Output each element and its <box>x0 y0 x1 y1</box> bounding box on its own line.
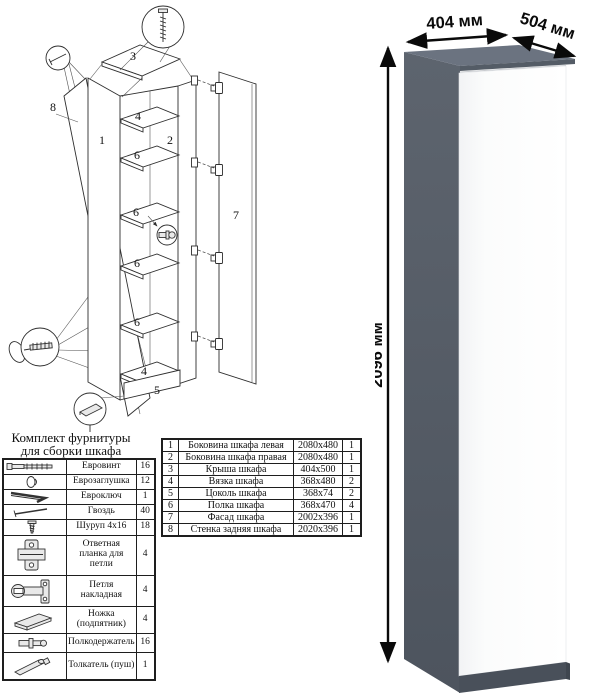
width-dimension-arrow <box>408 35 506 42</box>
hardware-qty: 4 <box>136 575 155 606</box>
hardware-qty: 4 <box>136 535 155 575</box>
table-row: Ответная планка для петли 4 <box>3 535 155 575</box>
screw-icon <box>3 519 67 535</box>
part-size: 404x500 <box>294 464 343 476</box>
table-row: 1Боковина шкафа левая2080x4801 <box>162 439 361 452</box>
hardware-name: Полкодержатель <box>67 633 137 652</box>
table-row: 4Вязка шкафа368x4802 <box>162 476 361 488</box>
part-num: 3 <box>162 464 179 476</box>
part-name: Вязка шкафа <box>179 476 294 488</box>
part-name: Крыша шкафа <box>179 464 294 476</box>
part-size: 2080x480 <box>294 439 343 452</box>
hinge-icon <box>3 575 67 606</box>
table-row: 6Полка шкафа368x4704 <box>162 500 361 512</box>
table-row: Гвоздь 40 <box>3 504 155 519</box>
part-number-label: 1 <box>99 133 105 147</box>
part-number-label: 6 <box>134 256 140 270</box>
euro-screw-icon <box>3 459 67 474</box>
table-row: Полкодержатель 16 <box>3 633 155 652</box>
table-row: Ножка (подпятник) 4 <box>3 606 155 633</box>
exploded-view-diagram: 8 1 3 4 2 6 6 6 6 4 5 7 <box>0 0 380 436</box>
hardware-qty: 12 <box>136 474 155 489</box>
product-render: 404 мм 504 мм 2096 мм <box>375 0 601 700</box>
part-number-label: 8 <box>50 100 56 114</box>
hardware-qty: 40 <box>136 504 155 519</box>
part-size: 368x470 <box>294 500 343 512</box>
push-rod-icon <box>3 652 67 680</box>
part-number-label: 6 <box>134 315 140 329</box>
shelf-pin-icon <box>3 633 67 652</box>
hardware-qty: 1 <box>136 652 155 680</box>
part-name: Фасад шкафа <box>179 512 294 524</box>
hinge-plate-icon <box>3 535 67 575</box>
part-number-label: 6 <box>134 148 140 162</box>
part-number-label: 7 <box>233 208 239 222</box>
parts-table: 1Боковина шкафа левая2080x4801 2Боковина… <box>161 438 362 537</box>
hardware-kit-title: Комплект фурнитуры для сборки шкафа <box>0 431 142 457</box>
hardware-name: Толкатель (пуш) <box>67 652 137 680</box>
part-number-label: 6 <box>133 205 139 219</box>
part-name: Стенка задняя шкафа <box>179 524 294 537</box>
hardware-name: Ножка (подпятник) <box>67 606 137 633</box>
hardware-name: Шуруп 4x16 <box>67 519 137 535</box>
hardware-qty: 18 <box>136 519 155 535</box>
wardrobe-side-panel <box>404 52 460 693</box>
hardware-kit-title-line2: для сборки шкафа <box>0 444 142 457</box>
part-qty: 2 <box>343 488 362 500</box>
part-qty: 1 <box>343 464 362 476</box>
part-num: 8 <box>162 524 179 537</box>
part-qty: 1 <box>343 524 362 537</box>
hardware-name: Петля накладная <box>67 575 137 606</box>
hardware-kit-table: Евровинт 16 Еврозаглушка 12 Евроключ 1 Г… <box>2 458 156 681</box>
assembly-instruction-sheet: 8 1 3 4 2 6 6 6 6 4 5 7 Комплект фурниту… <box>0 0 601 700</box>
hardware-qty: 16 <box>136 459 155 474</box>
depth-dimension-label: 504 мм <box>518 9 577 43</box>
part-qty: 1 <box>343 439 362 452</box>
assembly-line <box>90 64 102 79</box>
part-num: 1 <box>162 439 179 452</box>
part-size: 2020x396 <box>294 524 343 537</box>
part-num: 6 <box>162 500 179 512</box>
part-name: Полка шкафа <box>179 500 294 512</box>
part-number-label: 3 <box>130 49 136 63</box>
table-row: Петля накладная 4 <box>3 575 155 606</box>
wardrobe <box>404 45 575 693</box>
top-panel-part <box>102 45 180 76</box>
table-row: Евроключ 1 <box>3 489 155 504</box>
part-size: 368x74 <box>294 488 343 500</box>
part-qty: 1 <box>343 452 362 464</box>
table-row: 5Цоколь шкафа368x742 <box>162 488 361 500</box>
hardware-name: Ответная планка для петли <box>67 535 137 575</box>
table-row: 8Стенка задняя шкафа2020x3961 <box>162 524 361 537</box>
hardware-name: Гвоздь <box>67 504 137 519</box>
adjustable-foot-callout <box>74 393 124 432</box>
hardware-name: Евроключ <box>67 489 137 504</box>
part-number-label: 4 <box>135 109 141 123</box>
part-number-label: 4 <box>141 364 147 378</box>
wardrobe-plinth-cap <box>566 662 570 680</box>
hardware-qty: 16 <box>136 633 155 652</box>
part-num: 5 <box>162 488 179 500</box>
table-row: 2Боковина шкафа правая2080x4801 <box>162 452 361 464</box>
part-size: 368x480 <box>294 476 343 488</box>
part-name: Цоколь шкафа <box>179 488 294 500</box>
part-number-label: 5 <box>154 383 160 397</box>
part-number-label: 2 <box>167 133 173 147</box>
part-name: Боковина шкафа левая <box>179 439 294 452</box>
hardware-qty: 4 <box>136 606 155 633</box>
width-dimension-label: 404 мм <box>426 11 484 33</box>
table-row: Шуруп 4x16 18 <box>3 519 155 535</box>
door-part <box>219 72 256 384</box>
euro-cap-icon <box>3 474 67 489</box>
nail-callout <box>46 46 70 70</box>
foot-icon <box>3 606 67 633</box>
left-side-part <box>88 78 120 400</box>
part-size: 2080x480 <box>294 452 343 464</box>
hardware-qty: 1 <box>136 489 155 504</box>
wardrobe-door <box>459 66 566 676</box>
hardware-name: Евровинт <box>67 459 137 474</box>
part-num: 4 <box>162 476 179 488</box>
hex-key-icon <box>3 489 67 504</box>
part-num: 7 <box>162 512 179 524</box>
part-name: Боковина шкафа правая <box>179 452 294 464</box>
table-row: Еврозаглушка 12 <box>3 474 155 489</box>
hardware-name: Еврозаглушка <box>67 474 137 489</box>
part-qty: 4 <box>343 500 362 512</box>
table-row: Толкатель (пуш) 1 <box>3 652 155 680</box>
table-row: Евровинт 16 <box>3 459 155 474</box>
part-num: 2 <box>162 452 179 464</box>
part-qty: 1 <box>343 512 362 524</box>
table-row: 7Фасад шкафа2002x3961 <box>162 512 361 524</box>
part-size: 2002x396 <box>294 512 343 524</box>
height-dimension-label: 2096 мм <box>375 322 386 388</box>
hex-key-with-screw-callout <box>6 328 59 366</box>
table-row: 3Крыша шкафа404x5001 <box>162 464 361 476</box>
part-qty: 2 <box>343 476 362 488</box>
nail-icon <box>3 504 67 519</box>
